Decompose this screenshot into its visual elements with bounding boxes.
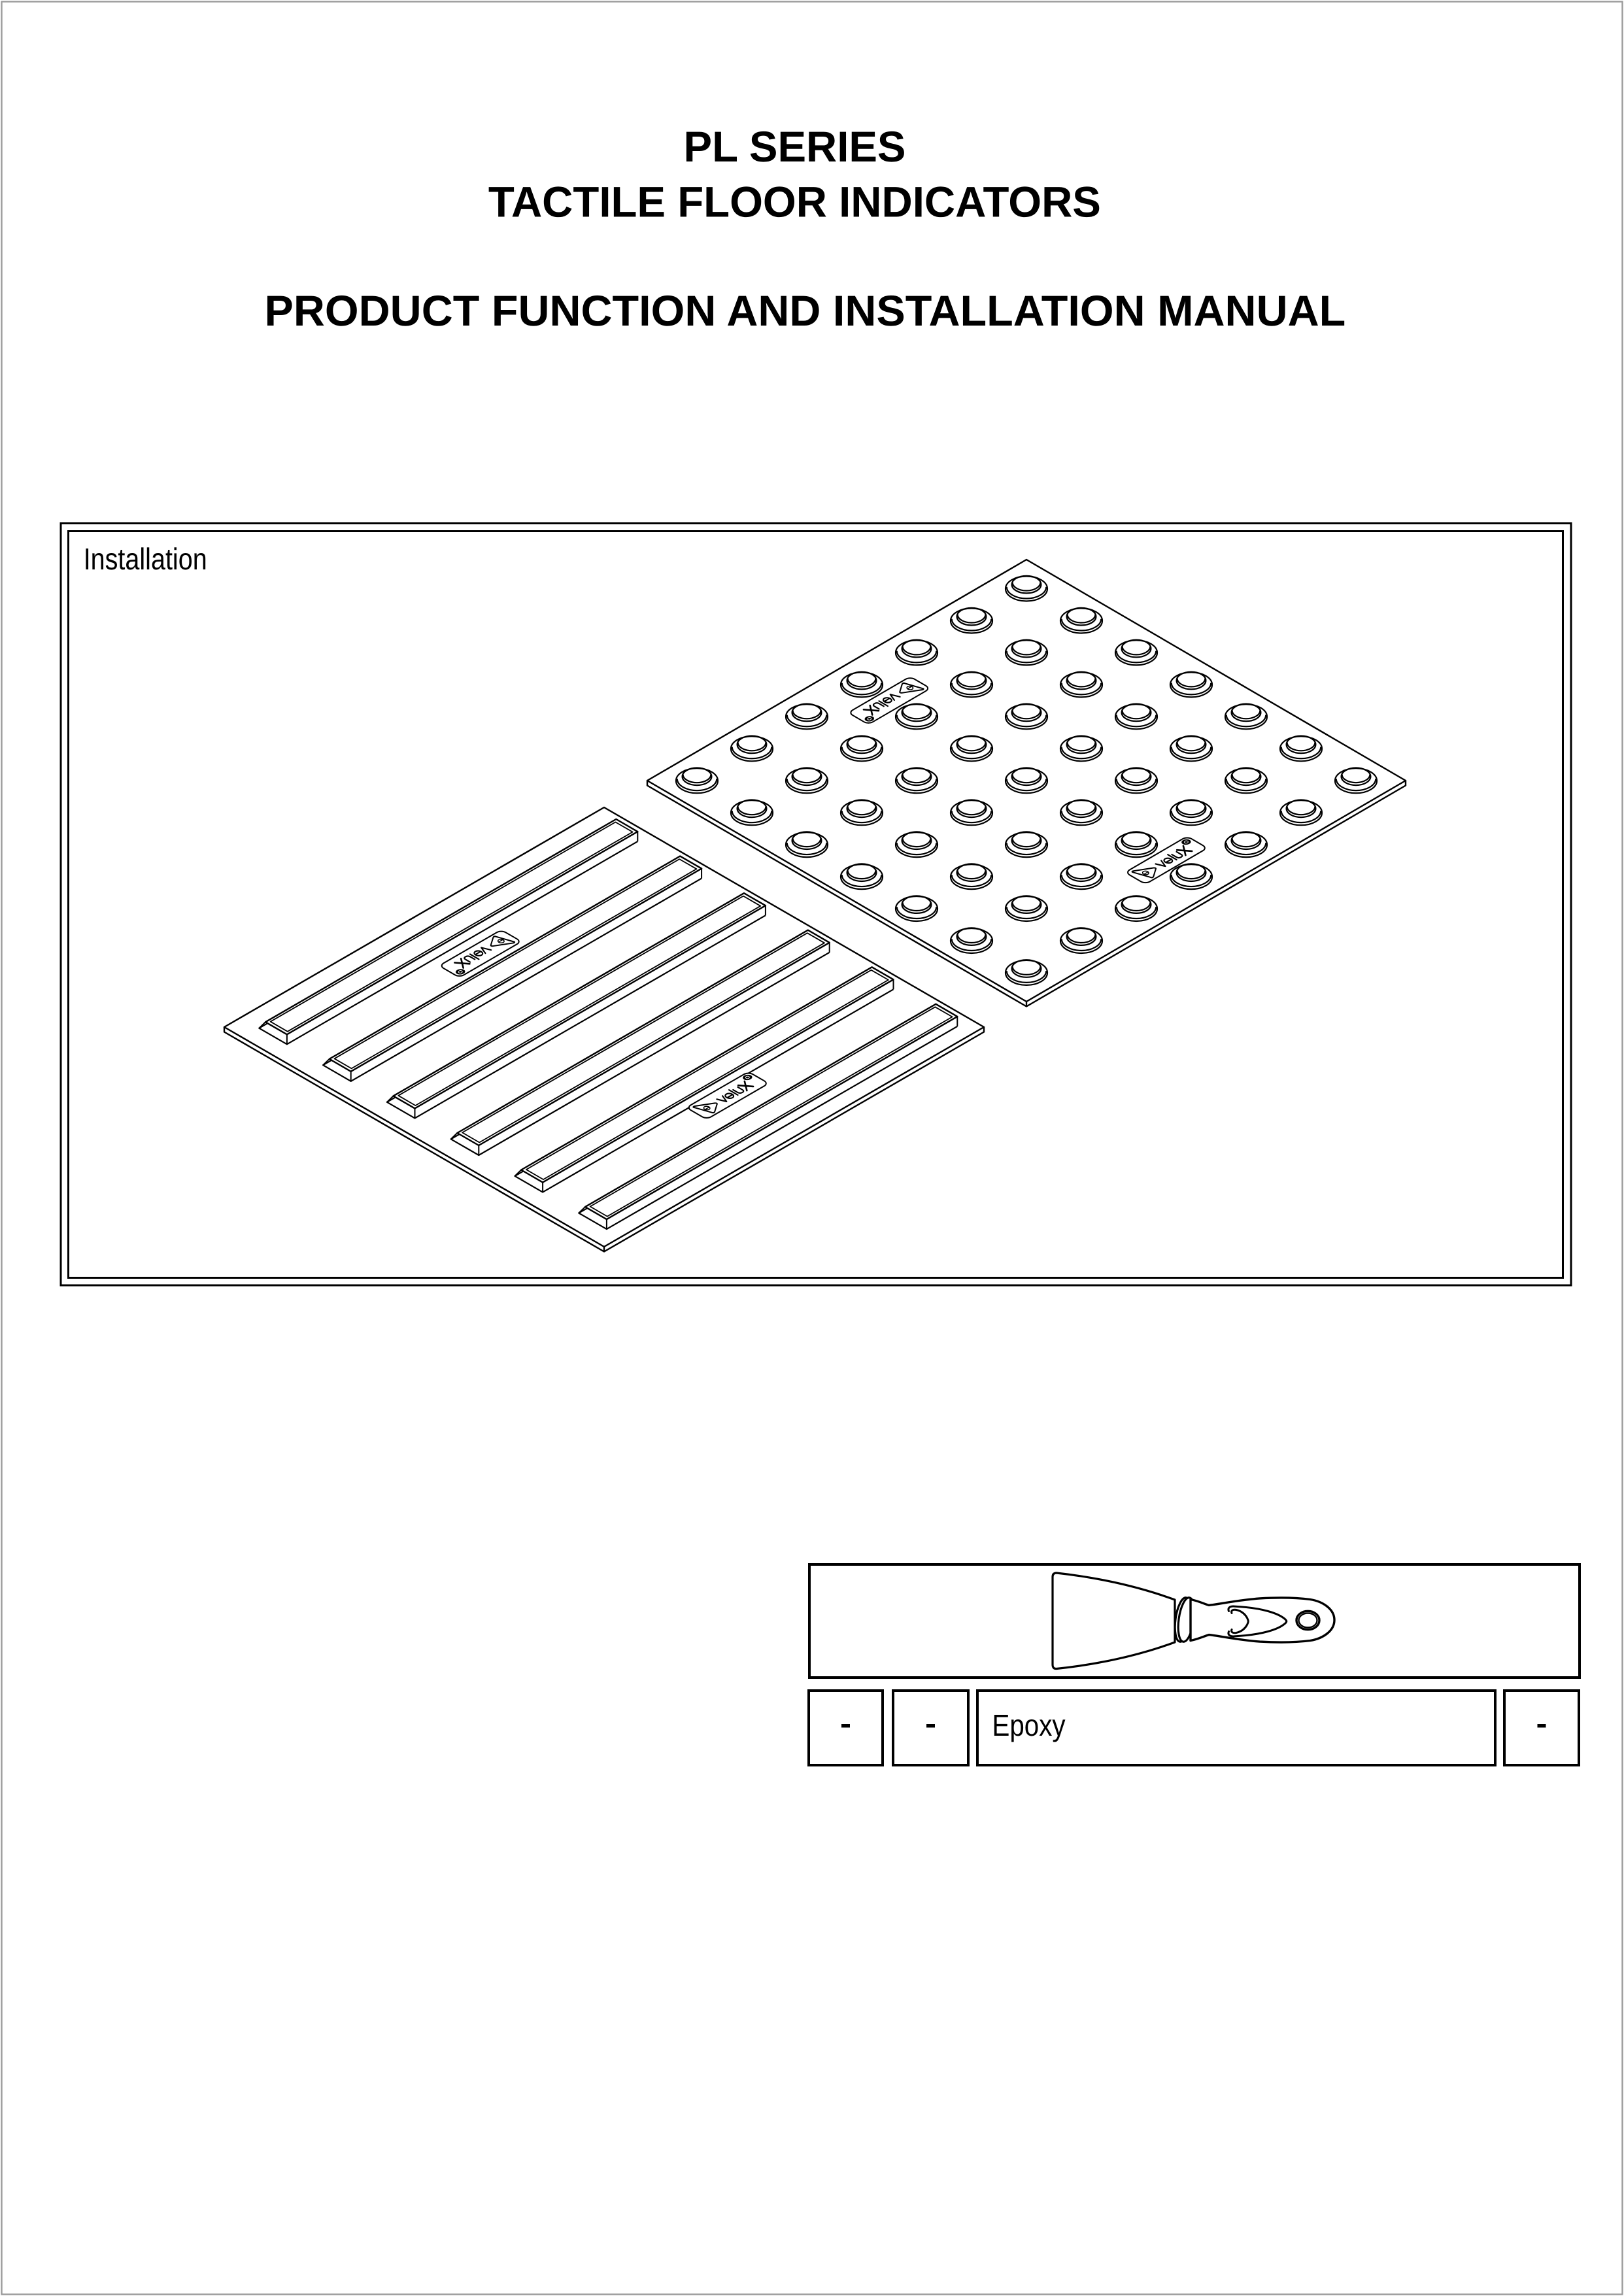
svg-text:Epoxy: Epoxy	[992, 1708, 1066, 1742]
svg-text:PL SERIES: PL SERIES	[684, 122, 906, 171]
svg-text:PRODUCT FUNCTION AND INSTALLAT: PRODUCT FUNCTION AND INSTALLATION MANUAL	[265, 286, 1346, 335]
svg-text:Installation: Installation	[84, 542, 207, 576]
svg-text:TACTILE FLOOR INDICATORS: TACTILE FLOOR INDICATORS	[488, 177, 1101, 226]
